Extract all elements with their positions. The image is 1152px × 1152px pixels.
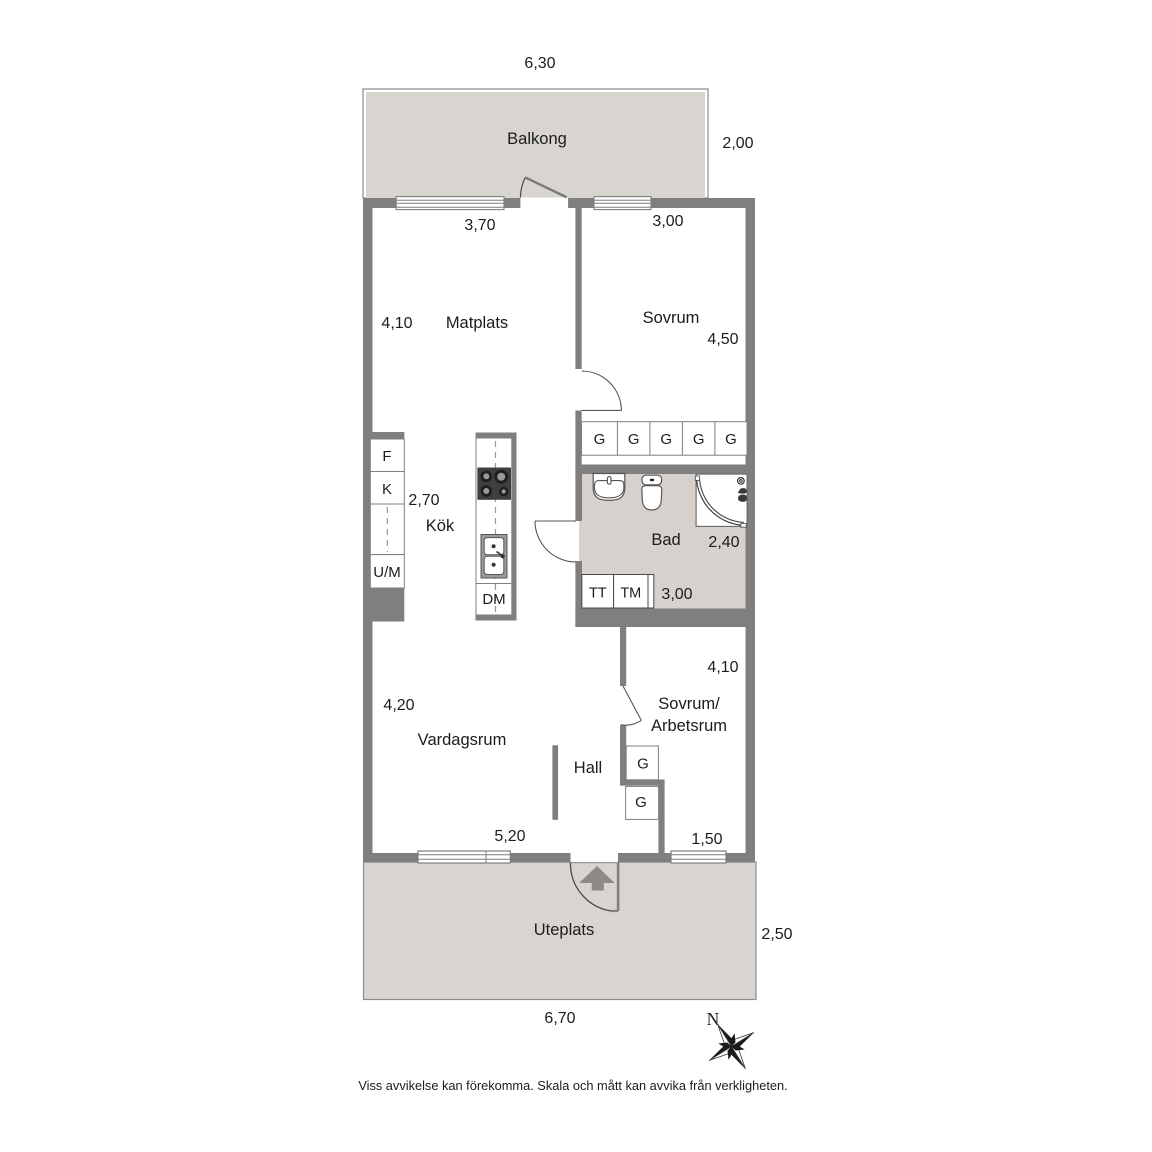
svg-text:2,00: 2,00	[722, 135, 753, 152]
svg-text:Arbetsrum: Arbetsrum	[651, 717, 727, 735]
svg-text:4,50: 4,50	[707, 331, 738, 348]
svg-text:G: G	[693, 431, 705, 448]
svg-text:4,20: 4,20	[383, 697, 414, 714]
svg-text:4,10: 4,10	[707, 659, 738, 676]
svg-text:TT: TT	[589, 586, 607, 602]
svg-text:Uteplats: Uteplats	[534, 921, 595, 939]
svg-text:TM: TM	[620, 586, 641, 602]
svg-text:G: G	[660, 431, 672, 448]
svg-text:4,10: 4,10	[381, 315, 412, 332]
svg-text:6,70: 6,70	[544, 1010, 575, 1027]
svg-text:3,00: 3,00	[661, 586, 692, 603]
svg-text:Bad: Bad	[651, 531, 680, 549]
svg-text:Matplats: Matplats	[446, 314, 508, 332]
svg-text:1,50: 1,50	[691, 831, 722, 848]
svg-text:2,40: 2,40	[708, 534, 739, 551]
svg-text:Balkong: Balkong	[507, 130, 567, 148]
svg-text:6,30: 6,30	[524, 55, 555, 72]
svg-text:G: G	[637, 756, 649, 773]
svg-text:Viss avvikelse kan förekomma.: Viss avvikelse kan förekomma. Skala och …	[358, 1078, 787, 1093]
svg-text:Sovrum: Sovrum	[643, 309, 700, 327]
svg-text:5,20: 5,20	[494, 828, 525, 845]
svg-text:2,50: 2,50	[761, 926, 792, 943]
svg-text:DM: DM	[482, 591, 505, 608]
svg-text:Sovrum/: Sovrum/	[658, 695, 720, 713]
svg-text:Vardagsrum: Vardagsrum	[418, 731, 507, 749]
svg-text:Hall: Hall	[574, 759, 602, 777]
svg-text:G: G	[594, 431, 606, 448]
svg-text:Kök: Kök	[426, 517, 455, 535]
svg-text:G: G	[635, 794, 647, 811]
svg-text:K: K	[382, 481, 392, 498]
svg-text:U/M: U/M	[373, 564, 401, 581]
svg-text:2,70: 2,70	[408, 492, 439, 509]
svg-text:3,00: 3,00	[652, 213, 683, 230]
svg-text:N: N	[707, 1009, 720, 1029]
svg-text:3,70: 3,70	[464, 217, 495, 234]
svg-text:G: G	[725, 431, 737, 448]
svg-text:F: F	[382, 448, 391, 465]
svg-text:G: G	[628, 431, 640, 448]
